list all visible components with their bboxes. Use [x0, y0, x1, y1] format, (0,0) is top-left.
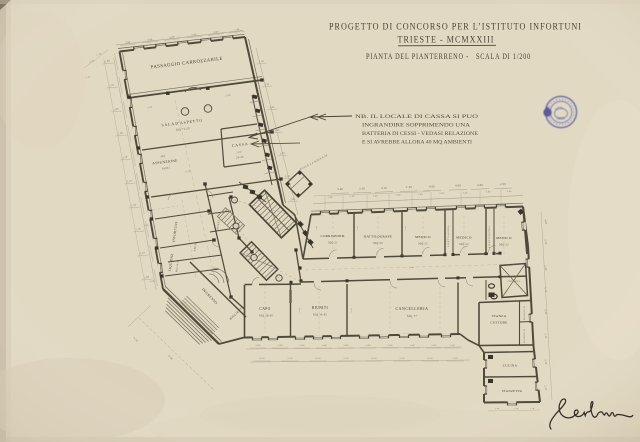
- svg-text:CUCINA: CUCINA: [503, 364, 518, 368]
- svg-text:MQ: MQ: [160, 155, 165, 159]
- svg-text:STANZA: STANZA: [492, 314, 507, 318]
- svg-text:4.20: 4.20: [357, 225, 359, 230]
- svg-text:1.00: 1.00: [366, 344, 372, 347]
- svg-text:1.10: 1.10: [530, 408, 535, 410]
- svg-text:0.50: 0.50: [260, 357, 266, 360]
- svg-text:MQ 28.60: MQ 28.60: [259, 314, 273, 318]
- svg-text:PROGETTO DI CONCORSO PER L’IST: PROGETTO DI CONCORSO PER L’ISTITUTO INFO…: [329, 22, 582, 33]
- svg-text:3.10: 3.10: [381, 186, 387, 190]
- svg-text:3.40: 3.40: [316, 225, 318, 230]
- svg-text:0.50: 0.50: [372, 357, 378, 360]
- svg-text:PIANTA DEL PIANTERRENO - SCA: PIANTA DEL PIANTERRENO - SCALA DI 1/200: [366, 52, 531, 61]
- svg-text:2.30: 2.30: [400, 357, 406, 360]
- svg-text:1.40: 1.40: [463, 191, 469, 194]
- svg-text:CUSTODE: CUSTODE: [490, 321, 507, 325]
- svg-text:RIPOSTIGLIO: RIPOSTIGLIO: [524, 305, 526, 320]
- svg-text:2.00: 2.00: [432, 344, 438, 347]
- svg-text:1.20: 1.20: [495, 408, 500, 410]
- svg-text:0.50: 0.50: [316, 357, 322, 360]
- svg-text:2.80: 2.80: [350, 195, 356, 198]
- svg-text:0.50: 0.50: [428, 357, 434, 360]
- svg-text:2.00: 2.00: [388, 344, 394, 347]
- svg-text:1.60: 1.60: [450, 344, 456, 347]
- svg-text:4.60: 4.60: [429, 184, 435, 188]
- svg-text:2.80: 2.80: [440, 192, 446, 195]
- svg-text:1.00: 1.00: [322, 344, 328, 347]
- svg-text:1.40: 1.40: [418, 193, 424, 196]
- svg-text:RIUNITI: RIUNITI: [312, 306, 329, 310]
- svg-text:SALETTA DONNA: SALETTA DONNA: [447, 225, 450, 247]
- svg-text:2.00: 2.00: [256, 344, 262, 347]
- svg-text:INGRANDIRE SOPPRIMENDO UNA: INGRANDIRE SOPPRIMENDO UNA: [362, 124, 471, 129]
- svg-text:4.40: 4.40: [410, 267, 415, 269]
- svg-text:4.60: 4.60: [477, 183, 483, 187]
- svg-text:2.50: 2.50: [500, 182, 506, 186]
- svg-text:8.05: 8.05: [351, 307, 353, 312]
- svg-text:TRIESTE - MCMXXIII: TRIESTE - MCMXXIII: [398, 35, 495, 46]
- svg-text:5.90: 5.90: [453, 357, 459, 360]
- svg-text:4.20: 4.20: [405, 225, 407, 230]
- svg-text:E SI AVREBBE ALLORA 40 MQ AMBI: E SI AVREBBE ALLORA 40 MQ AMBIENTI: [362, 141, 472, 146]
- svg-text:NB. IL LOCALE DI CASSA SI PUÒ: NB. IL LOCALE DI CASSA SI PUÒ: [355, 114, 479, 120]
- svg-text:2.00: 2.00: [344, 344, 350, 347]
- svg-text:1.40: 1.40: [406, 185, 412, 189]
- svg-text:MQ 77: MQ 77: [407, 314, 417, 318]
- svg-text:1.40: 1.40: [507, 190, 513, 193]
- svg-text:3.10: 3.10: [359, 187, 365, 191]
- svg-text:CANCELLERIA: CANCELLERIA: [396, 307, 429, 311]
- svg-text:2.80: 2.80: [486, 191, 492, 194]
- svg-text:2.00: 2.00: [300, 344, 306, 347]
- svg-text:4.00: 4.00: [455, 184, 461, 188]
- svg-text:2.80: 2.80: [396, 194, 402, 197]
- svg-text:2.30: 2.30: [344, 357, 350, 360]
- svg-text:1.40: 1.40: [373, 194, 379, 197]
- svg-text:2.30: 2.30: [288, 357, 294, 360]
- svg-text:CHIESINA: CHIESINA: [508, 280, 521, 283]
- svg-text:2.30: 2.30: [514, 408, 519, 410]
- svg-text:1.40: 1.40: [328, 196, 334, 199]
- svg-text:1.00: 1.00: [278, 344, 284, 347]
- svg-text:3.40: 3.40: [337, 187, 343, 191]
- svg-text:STANZETTA: STANZETTA: [502, 389, 523, 393]
- svg-text:BATTERIA DI CESSI - VEDASI REL: BATTERIA DI CESSI - VEDASI RELAZIONE: [362, 132, 478, 137]
- svg-text:SALETTA DONNA: SALETTA DONNA: [488, 226, 491, 248]
- svg-text:4.80: 4.80: [299, 307, 301, 312]
- svg-text:MQ 34.45: MQ 34.45: [313, 313, 327, 317]
- svg-text:1.00: 1.00: [410, 344, 416, 347]
- svg-text:RIPOSTIGLIO: RIPOSTIGLIO: [524, 328, 526, 343]
